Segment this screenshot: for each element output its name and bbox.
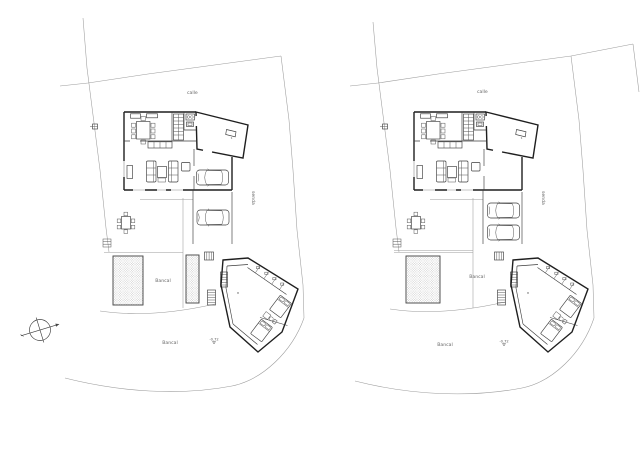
site-boundary [350,22,639,394]
house [124,112,248,190]
hatched-terrace [406,256,440,303]
house [414,112,538,190]
level-marker: -0.72 [499,340,508,347]
site-plan-drawing: calle senda Bancal Bancal -0.72 calle se… [0,0,640,453]
path-label: senda [250,191,256,205]
lower-terrace-label: Bancal [437,342,453,348]
street-label: calle [477,89,488,95]
car-on-drive [488,202,520,220]
upper-terrace-label: Bancal [155,278,171,284]
drawing-sheet: calle senda Bancal Bancal -0.72 calle se… [0,0,640,453]
upper-terrace-label: Bancal [469,274,485,280]
bedroom-wing [511,258,588,352]
hatched-terrace [113,256,143,305]
hatched-terrace [186,255,199,303]
plan-variant-1: calle senda Bancal Bancal -0.72 [60,18,304,392]
lower-terrace-label: Bancal [162,340,178,346]
street-label: calle [187,90,198,96]
path-label: senda [540,191,546,205]
car-in-carport [197,169,229,187]
bedroom-wing [221,258,298,352]
site-boundary [60,18,304,392]
car-on-drive [488,224,520,242]
svg-text:-0.72: -0.72 [209,338,218,342]
north-arrow-icon [17,312,63,349]
car-on-drive [197,209,229,227]
level-marker: -0.72 [209,338,218,345]
plan-variant-2: calle senda Bancal Bancal -0.72 [350,22,639,394]
svg-text:-0.72: -0.72 [499,340,508,344]
